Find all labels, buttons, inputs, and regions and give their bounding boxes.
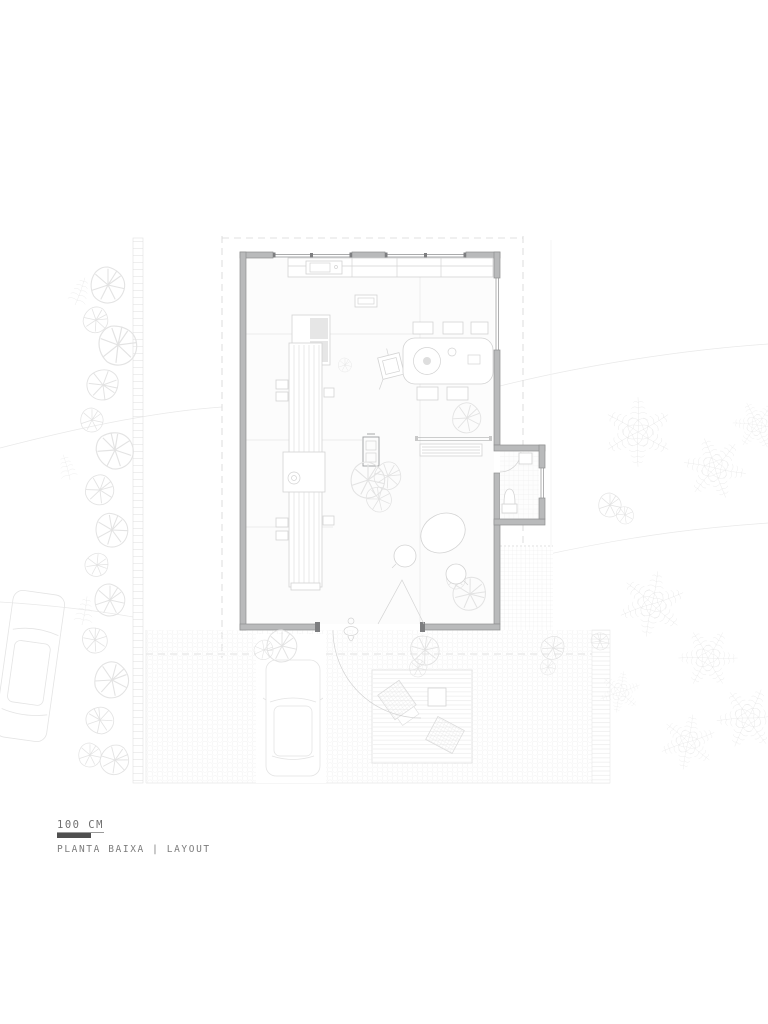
table-chair: [447, 387, 468, 400]
bathroom-sink: [519, 453, 532, 464]
parked-car-street: [0, 589, 66, 743]
table-chair: [471, 322, 488, 334]
table-chair: [443, 322, 463, 334]
driveway: [256, 634, 326, 783]
bench-chair: [276, 518, 288, 527]
wood-deck: [372, 670, 472, 763]
bench-stool: [324, 388, 334, 397]
deck-side-table: [428, 688, 446, 706]
bathroom-annex: [494, 445, 545, 525]
ceiling-lamp: [355, 295, 377, 307]
table-chair: [417, 387, 438, 400]
scale-label: 100 CM: [57, 819, 211, 831]
left-vegetation-strip: [55, 267, 142, 780]
gravel-strip: [500, 546, 553, 630]
right-vegetation: [593, 392, 768, 782]
scale-bar: [57, 833, 91, 838]
window-top-left: [273, 253, 352, 258]
left-fence: [133, 238, 143, 783]
boardwalk-strip: [592, 630, 610, 783]
bench-chair: [276, 531, 288, 540]
window-top-right: [385, 253, 466, 258]
title-block: 100 CM PLANTA BAIXA | LAYOUT: [57, 819, 211, 855]
drawing-sheet: 100 CM PLANTA BAIXA | LAYOUT: [0, 0, 768, 1024]
side-desk: [283, 452, 325, 492]
window-bathroom: [541, 468, 544, 498]
window-right: [496, 278, 499, 350]
kitchen-counter: [288, 258, 493, 277]
floor-plan-drawing: [0, 0, 768, 1024]
bench-stool: [323, 516, 334, 525]
bench-chair: [276, 380, 288, 389]
plan-title: PLANTA BAIXA | LAYOUT: [57, 844, 211, 855]
bench-chair: [276, 392, 288, 401]
table-chair: [413, 322, 433, 334]
